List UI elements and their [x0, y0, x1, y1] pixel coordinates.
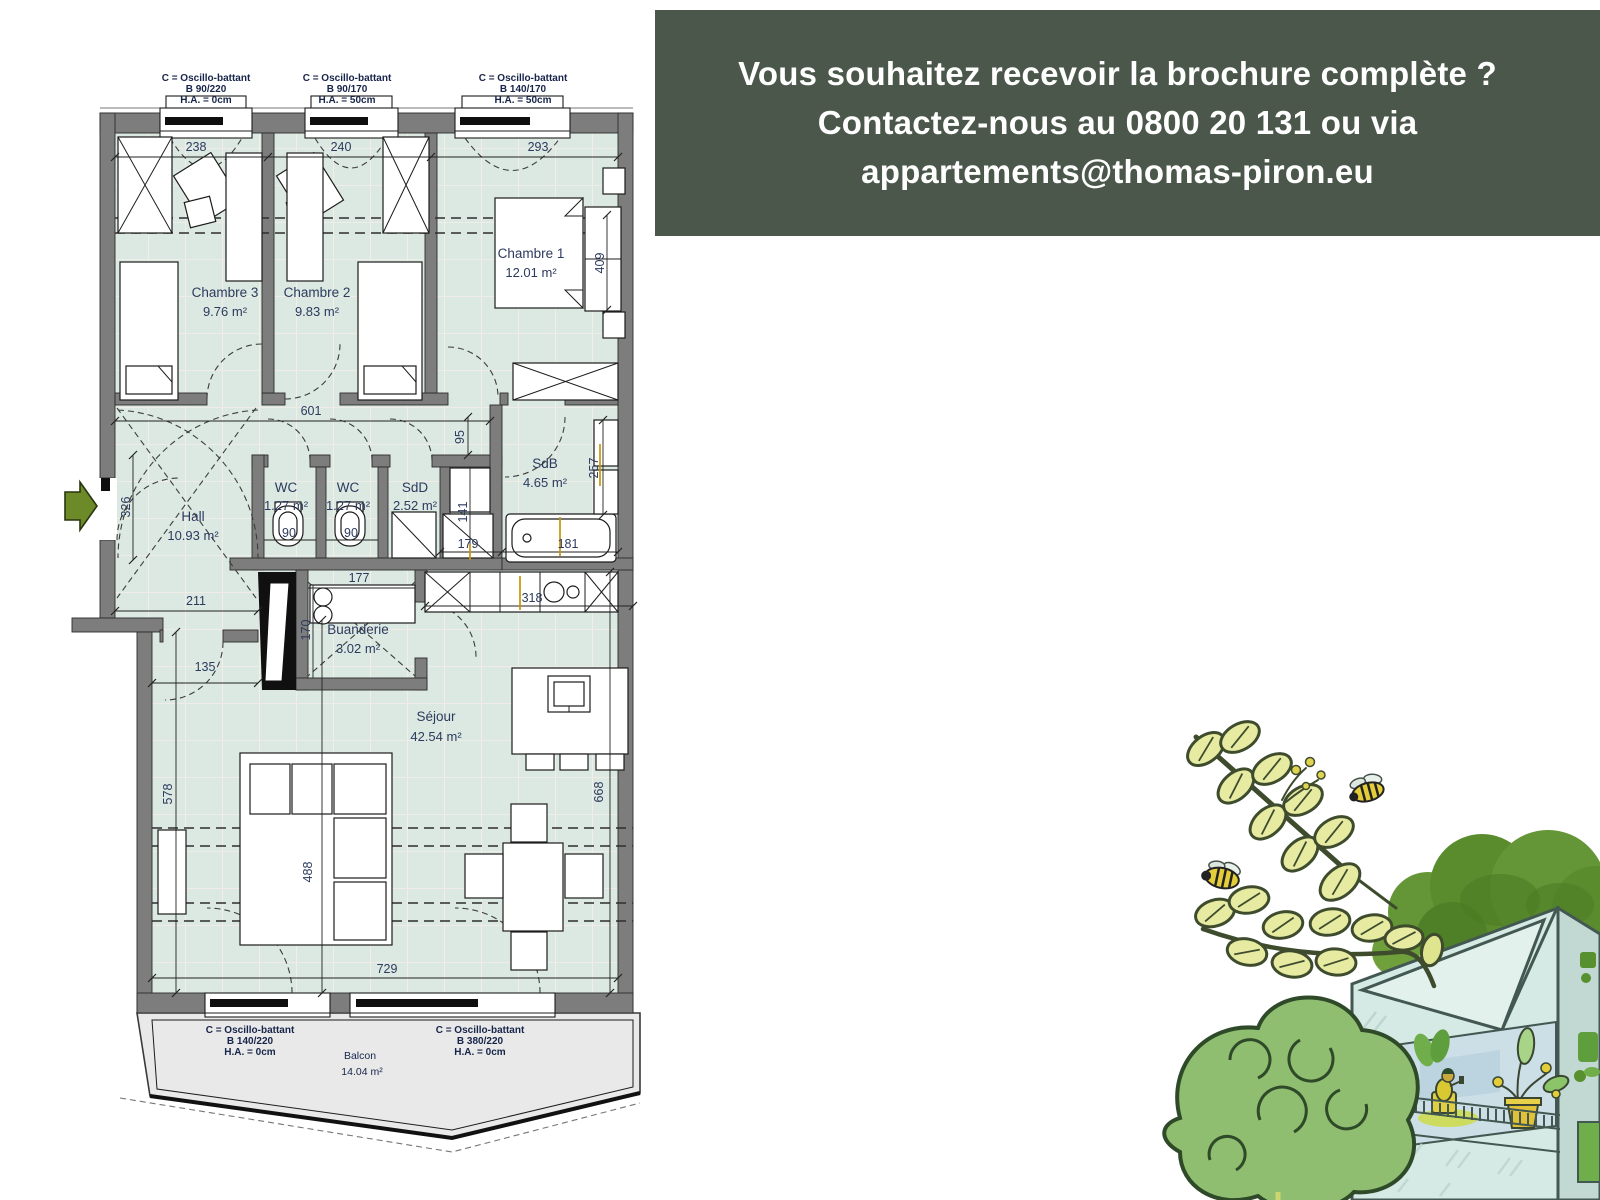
- room-area-sdb: 4.65 m²: [523, 475, 568, 490]
- room-area-chambre1: 12.01 m²: [505, 265, 557, 280]
- room-area-balcon: 14.04 m²: [341, 1066, 383, 1078]
- room-label-chambre2: Chambre 2: [284, 285, 351, 300]
- banner-line-email: appartements@thomas-piron.eu: [861, 153, 1374, 191]
- bee-icon: [1344, 769, 1387, 805]
- room-label-wc1: WC: [275, 480, 298, 495]
- dim-kitchen-width: 318: [522, 591, 543, 605]
- entrance-arrow-icon: [65, 482, 97, 530]
- contact-banner: Vous souhaitez recevoir la brochure comp…: [655, 10, 1600, 236]
- room-label-chambre1: Chambre 1: [498, 246, 565, 261]
- dim-cabinet-width: 179: [458, 537, 479, 551]
- dim-chambre1-width: 293: [528, 140, 549, 154]
- dim-buanderie-depth: 170: [299, 620, 313, 641]
- dim-hall-door: 135: [195, 660, 216, 674]
- room-label-wc2: WC: [337, 480, 360, 495]
- dim-hall-entry: 326: [119, 497, 133, 518]
- dim-corridor-length: 601: [301, 404, 322, 418]
- room-area-wc2: 1.27 m²: [326, 498, 371, 513]
- dim-chambre2-width: 240: [331, 140, 352, 154]
- window-label-bottom2-type: C = Oscillo-battant: [436, 1025, 525, 1036]
- dim-hall-bottom: 211: [186, 594, 206, 608]
- room-label-chambre3: Chambre 3: [192, 285, 259, 300]
- dim-chambre3-width: 238: [186, 140, 207, 154]
- window-label-bottom2-ha: H.A. = 0cm: [454, 1047, 506, 1058]
- room-area-wc1: 1.27 m²: [264, 498, 309, 513]
- window-label-bottom1-type: C = Oscillo-battant: [206, 1025, 295, 1036]
- dim-cabinet-depth: 141: [456, 502, 470, 523]
- room-area-chambre2: 9.83 m²: [295, 304, 340, 319]
- window-label-top3-type: C = Oscillo-battant: [479, 73, 568, 84]
- room-label-sdd: SdD: [402, 480, 429, 495]
- window-label-bottom1-size: B 140/220: [227, 1036, 274, 1047]
- dim-sejour-left: 578: [161, 784, 175, 805]
- window-label-top2-type: C = Oscillo-battant: [303, 73, 392, 84]
- window-label-top1-ha: H.A. = 0cm: [180, 95, 232, 106]
- window-label-top1-type: C = Oscillo-battant: [162, 73, 251, 84]
- room-label-sejour: Séjour: [416, 709, 456, 724]
- banner-line-phone: Contactez-nous au 0800 20 131 ou via: [818, 104, 1418, 142]
- bee-icon: [1199, 855, 1243, 891]
- room-area-hall: 10.93 m²: [167, 528, 219, 543]
- dim-wc2: 90: [344, 526, 358, 540]
- dim-chambre1-depth: 409: [593, 253, 607, 274]
- dim-wc1: 90: [282, 526, 296, 540]
- floor-plan: 238 240 293 409 601 95 257 326 90 90 141…: [65, 73, 640, 1152]
- dim-sdb-right: 257: [587, 458, 601, 479]
- room-area-sdd: 2.52 m²: [393, 498, 438, 513]
- balcony: [120, 1013, 640, 1152]
- room-label-balcon: Balcon: [344, 1050, 376, 1062]
- window-label-top2-ha: H.A. = 50cm: [319, 95, 376, 106]
- dim-corridor-width: 95: [453, 430, 467, 444]
- dim-sejour-width: 729: [377, 962, 398, 976]
- room-label-sdb: SdB: [532, 456, 558, 471]
- window-label-top2-size: B 90/170: [327, 84, 368, 95]
- room-label-hall: Hall: [181, 509, 204, 524]
- window-label-bottom2-size: B 380/220: [457, 1036, 504, 1047]
- illustration: [1164, 715, 1600, 1200]
- window-label-top3-size: B 140/170: [500, 84, 547, 95]
- banner-line-question: Vous souhaitez recevoir la brochure comp…: [738, 55, 1497, 93]
- room-area-chambre3: 9.76 m²: [203, 304, 248, 319]
- dim-sejour-right: 668: [592, 782, 606, 803]
- window-label-top3-ha: H.A. = 50cm: [495, 95, 552, 106]
- brochure-page: 238 240 293 409 601 95 257 326 90 90 141…: [0, 0, 1600, 1200]
- dim-sejour-mid: 488: [301, 862, 315, 883]
- dim-bath-width: 181: [558, 537, 579, 551]
- window-label-bottom1-ha: H.A. = 0cm: [224, 1047, 276, 1058]
- room-area-sejour: 42.54 m²: [410, 729, 462, 744]
- room-label-buanderie: Buanderie: [327, 622, 389, 637]
- window-label-top1-size: B 90/220: [186, 84, 227, 95]
- dim-buanderie-counter: 177: [349, 571, 370, 585]
- room-area-buanderie: 3.02 m²: [336, 641, 381, 656]
